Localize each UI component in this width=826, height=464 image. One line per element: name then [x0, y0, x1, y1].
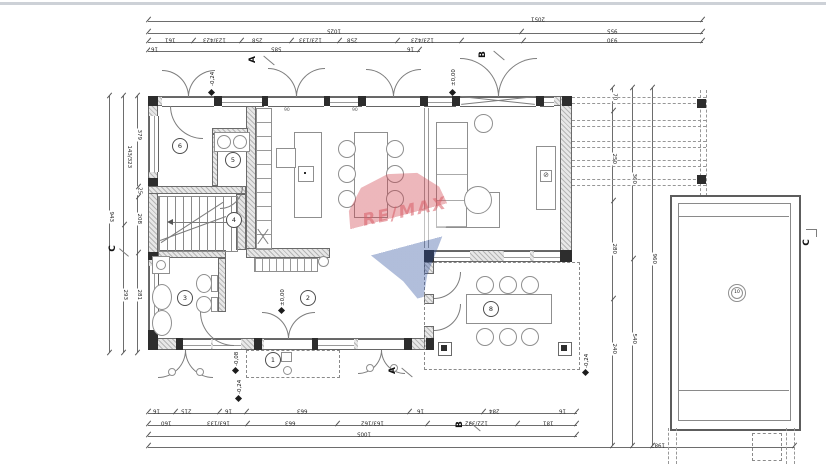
dim-label: 258 [346, 36, 359, 42]
kitchen-sink [298, 166, 314, 182]
dim-tick [136, 249, 141, 255]
dim-tick [521, 37, 526, 43]
pergola-beam-line [572, 103, 706, 104]
door-knob-icon [196, 368, 204, 376]
dim-label: 284 [488, 407, 501, 413]
window [432, 251, 470, 262]
dim-label: 143/323 [126, 144, 132, 169]
pergola-beam-line [572, 126, 706, 127]
pergola-beam-line [572, 185, 706, 186]
column-block [324, 96, 330, 106]
dim-tick [245, 420, 250, 426]
dim-label: 240 [611, 343, 617, 356]
dim-tick [459, 37, 464, 43]
section-marker-a-bottom: A [389, 367, 398, 374]
dim-tick [217, 408, 222, 414]
side-table [474, 114, 493, 133]
door-swing-arc [460, 58, 499, 97]
hall-cabinet-bench [254, 258, 318, 272]
column-block [312, 338, 318, 350]
pool-bench-line [679, 390, 789, 391]
door-swing-arc [498, 58, 537, 97]
toilet [196, 274, 212, 293]
window [318, 339, 354, 350]
level-marker-text: -0,08 [235, 352, 241, 366]
wall-east [560, 96, 572, 262]
section-marker-b-top: B [479, 51, 488, 58]
window [183, 339, 211, 350]
floor-plan-sheet: 2051 1025 955 161 123/423 258 123/133 25… [0, 0, 826, 464]
dim-label: 16 [406, 45, 415, 51]
level-marker-text: -0,24 [585, 354, 591, 368]
level-marker-text: ±0,00 [281, 289, 287, 306]
pool-dashed-line [676, 428, 677, 464]
terrace-table [466, 294, 552, 324]
window-sill-note: 90 [352, 108, 358, 113]
toilet-tank [211, 275, 218, 292]
dim-label: 123/423 [202, 36, 227, 42]
door-swing-arc [366, 69, 394, 97]
dim-label: 960 [651, 253, 657, 266]
wc-sink [233, 135, 247, 149]
column-block [536, 96, 544, 106]
room-label-3: 3 [177, 290, 193, 306]
dim-line-bottom-2: 160 163/133 663 163/162 122/332 181 [148, 425, 577, 426]
dim-label: 16 [150, 45, 159, 51]
dim-tick [631, 255, 636, 261]
terrace-chair [499, 276, 517, 294]
pool-basin [678, 203, 791, 421]
dim-line-bottom-1: 16 215 16 663 16 284 16 [148, 413, 577, 414]
stair-walkline [170, 222, 228, 223]
bathroom-sink [152, 310, 172, 336]
level-marker-text: ±0,00 [452, 69, 458, 86]
dim-label: 16 [224, 407, 233, 413]
column-block [254, 338, 262, 350]
section-marker-line [816, 229, 817, 237]
dim-label: 250 [611, 153, 617, 166]
dim-label: 163/162 [360, 419, 385, 425]
column-block [420, 96, 428, 106]
dim-label: 379 [136, 129, 142, 142]
wall-bath-right [218, 258, 226, 312]
dim-tick [122, 221, 127, 227]
dim-label: 208 [136, 213, 142, 226]
section-marker-c-right: C [803, 239, 812, 246]
dim-line-left-mid: 143/323 293 [123, 96, 124, 352]
door-opening-french-a [268, 97, 324, 107]
bidet [196, 296, 212, 313]
door-swing-arc [393, 69, 421, 97]
dining-chair [338, 165, 356, 183]
section-marker-line [493, 51, 504, 61]
column-block [214, 96, 222, 106]
room-label-5: 5 [225, 152, 241, 168]
terrace-chair [521, 328, 539, 346]
dim-label: 663 [296, 407, 309, 413]
door-swing-arc [162, 70, 189, 97]
room-label-1: 1 [265, 352, 281, 368]
dim-line-top-3: 161 123/423 258 123/133 258 123/423 930 [148, 42, 703, 43]
room-label-terrace: 8 [483, 301, 499, 317]
terrace-column-core [561, 345, 567, 351]
dim-tick [611, 107, 616, 113]
pergola-beam-line [572, 166, 706, 167]
wc-sink [217, 135, 231, 149]
dim-tick [289, 37, 294, 43]
dim-label: 540 [631, 333, 637, 346]
column-block [452, 96, 460, 106]
dim-label: 161 [164, 36, 177, 42]
entrance-door-arc [262, 312, 289, 339]
door-knob-icon [168, 368, 176, 376]
dim-tick [395, 37, 400, 43]
pool-dashed-line [668, 428, 669, 464]
terrace-chair [499, 328, 517, 346]
window [504, 251, 530, 262]
dim-line-top-total: 2051 [148, 21, 703, 22]
entrance-door-arc [288, 312, 315, 339]
level-marker-text: -0,24 [211, 72, 217, 86]
column-block [176, 338, 183, 350]
dim-label: 163/133 [206, 419, 231, 425]
pergola-beam-line [572, 141, 706, 142]
dim-label: 281 [136, 289, 142, 302]
dim-tick [611, 197, 616, 203]
column-block [358, 96, 366, 106]
dim-label: 181 [542, 419, 555, 425]
pergola-post-line [706, 90, 707, 196]
terrace-chair [476, 328, 494, 346]
window [149, 116, 159, 172]
dim-label: 1005 [356, 430, 372, 436]
door-opening-entrance [264, 339, 312, 350]
porch-light-icon [283, 366, 292, 375]
coffee-table [464, 186, 492, 214]
dim-label: 16 [152, 407, 161, 413]
pergola-beam-line [572, 120, 706, 121]
doormat [281, 352, 292, 362]
pergola-beam-line [572, 160, 706, 161]
pergola-post [697, 175, 706, 184]
level-marker-icon [235, 395, 242, 402]
room-label-2: 2 [300, 290, 316, 306]
column-block [562, 96, 572, 106]
stair-direction-arrow-icon [164, 219, 173, 225]
pool-dashed-line [794, 428, 795, 464]
dim-label: 215 [180, 407, 193, 413]
bidet-back [211, 297, 218, 312]
section-marker-a-top: A [249, 56, 258, 63]
column-block [262, 96, 268, 106]
dim-line-bottom-3: 1005 [148, 436, 577, 437]
section-marker-line [806, 229, 816, 230]
level-marker-icon [232, 367, 239, 374]
scan-edge-line [0, 2, 826, 5]
dim-line-bottom-4: 1987 [148, 447, 795, 448]
column-block [404, 338, 412, 350]
column-block [560, 250, 572, 262]
dim-line-top-2: 1025 955 [148, 33, 703, 34]
dim-label: 943 [108, 211, 114, 224]
dim-label: 16 [416, 407, 425, 413]
room-label-pool: 10 [731, 287, 743, 299]
column-block [148, 338, 158, 350]
dim-tick [191, 37, 196, 43]
door-opening-french-b [366, 97, 420, 107]
dim-label: 122/332 [464, 419, 489, 425]
dim-label: 160 [160, 419, 173, 425]
dining-chair [386, 140, 404, 158]
column-round [318, 256, 329, 267]
dim-label: 1025 [326, 27, 342, 33]
dim-label: 2051 [530, 15, 546, 21]
dim-line-left-outer: 943 [109, 96, 110, 352]
window [222, 97, 264, 107]
terrace-chair [476, 276, 494, 294]
section-marker-b-bottom: B [456, 421, 465, 428]
column-block [148, 96, 158, 106]
level-marker-icon [278, 307, 285, 314]
dining-chair [338, 140, 356, 158]
level-marker-icon [449, 89, 456, 96]
pergola-post [697, 99, 706, 108]
window-sill-note: 90 [284, 108, 290, 113]
dim-label: 663 [284, 419, 297, 425]
dim-label: 585 [270, 45, 283, 51]
washer-drum-icon [156, 260, 166, 270]
kitchen-island-extension [276, 148, 296, 168]
dim-tick [407, 408, 412, 414]
dim-tick [173, 408, 178, 414]
section-marker-c-left: C [109, 245, 118, 252]
dim-tick [481, 408, 486, 414]
room-label-4: 4 [226, 212, 242, 228]
door-opening-south [358, 339, 404, 350]
terrace-chair [521, 276, 539, 294]
dim-label: 258 [251, 36, 264, 42]
level-marker-icon [582, 369, 589, 376]
door-knob-icon [366, 364, 374, 372]
dim-tick [239, 37, 244, 43]
dim-tick [519, 28, 524, 34]
dim-label: 123/423 [410, 36, 435, 42]
dim-line-left-inner: 379 25 208 281 [137, 96, 138, 352]
column-block [148, 178, 158, 186]
dim-line-top-4: 16 585 16 [148, 51, 420, 52]
sink-drain-icon [304, 172, 306, 174]
dim-tick [425, 420, 430, 426]
room-label-6: 6 [172, 138, 188, 154]
pergola-beam-line [572, 147, 706, 148]
section-marker-line [119, 248, 129, 256]
section-marker-line [263, 56, 274, 66]
pergola-beam-line [572, 97, 706, 98]
dim-label: 280 [611, 243, 617, 256]
porch-outline [246, 350, 340, 378]
door-swing-arc [170, 106, 203, 139]
dim-label: 16 [558, 407, 567, 413]
door-swing-arc [296, 68, 325, 97]
terrace-column-core [441, 345, 447, 351]
dim-tick [337, 37, 342, 43]
dim-label: 123/133 [298, 36, 323, 42]
dim-label: 293 [122, 289, 128, 302]
bathroom-sink [152, 284, 172, 310]
dim-tick [335, 420, 340, 426]
pool-step-line [679, 216, 789, 217]
fireplace-symbol-icon: ⊘ [540, 170, 552, 182]
pool-dashed-line [786, 428, 787, 464]
level-marker-text: -0,24 [238, 380, 244, 394]
dim-tick [611, 295, 616, 301]
pool-equipment-outline [752, 433, 782, 461]
door-swing-arc [268, 68, 297, 97]
dim-tick [244, 408, 249, 414]
pergola-beam-line [572, 179, 706, 180]
dim-label: 930 [606, 36, 619, 42]
dim-label: 955 [606, 27, 619, 33]
dim-tick [515, 420, 520, 426]
